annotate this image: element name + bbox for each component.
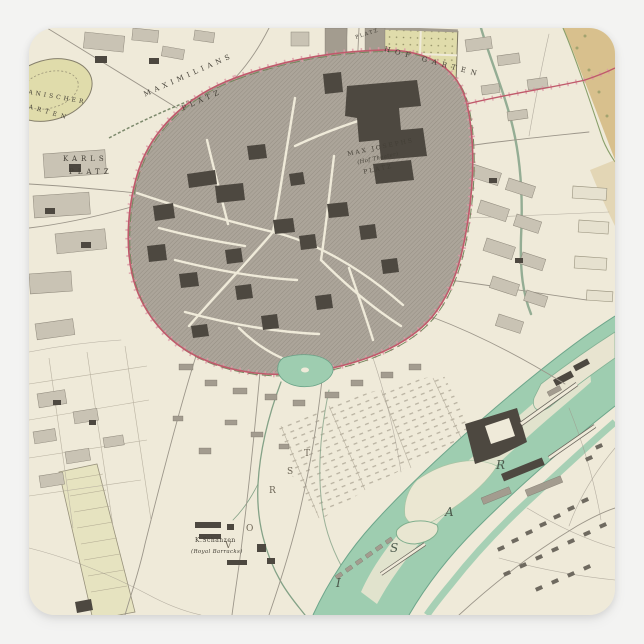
- munich-map: [29, 28, 615, 615]
- square-sticker: MAXIMILIANS PLATZ KARLS PLATZ HOF GARTEN…: [29, 28, 615, 615]
- product-image-background: MAXIMILIANS PLATZ KARLS PLATZ HOF GARTEN…: [0, 0, 644, 644]
